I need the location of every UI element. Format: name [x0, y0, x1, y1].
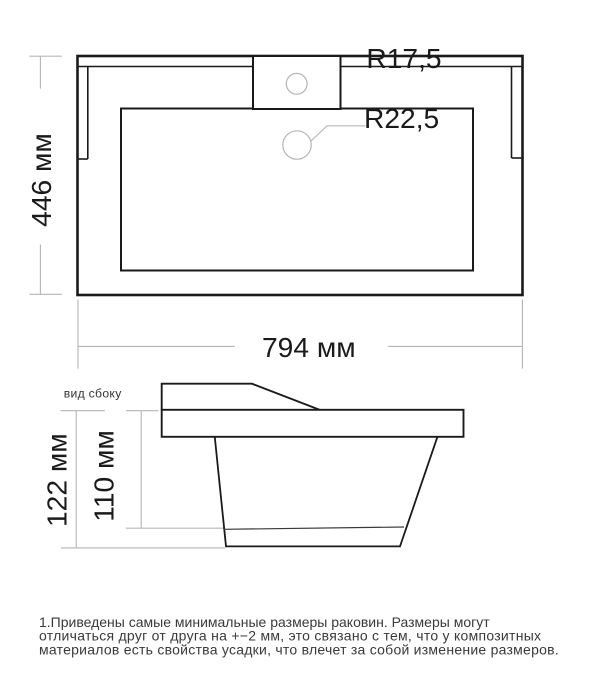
svg-text:вид сбоку: вид сбоку — [64, 387, 123, 401]
svg-text:122 мм: 122 мм — [41, 433, 73, 527]
svg-text:R17,5: R17,5 — [366, 42, 441, 74]
svg-text:794 мм: 794 мм — [262, 331, 356, 363]
svg-text:110 мм: 110 мм — [87, 430, 119, 522]
svg-text:материалов есть свойства усадк: материалов есть свойства усадки, что вле… — [39, 642, 559, 658]
svg-text:446 мм: 446 мм — [25, 133, 57, 227]
svg-text:R22,5: R22,5 — [364, 102, 439, 134]
